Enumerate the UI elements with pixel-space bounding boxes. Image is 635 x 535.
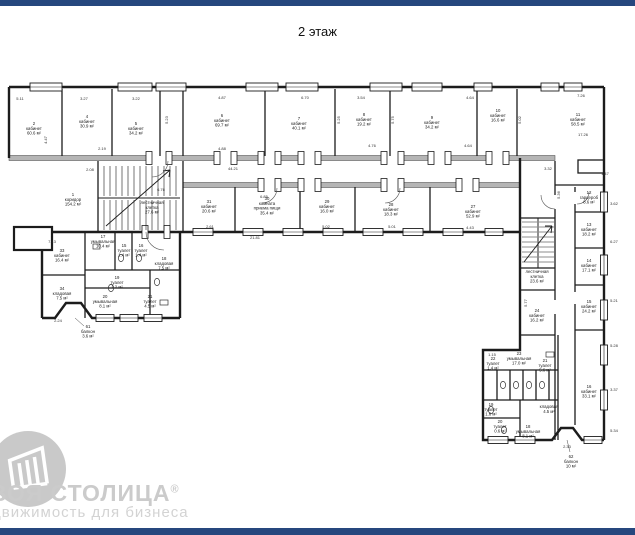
dimension-label: 5.11: [16, 96, 24, 101]
staircase-right: [522, 218, 554, 268]
dimension-label: 2.19: [98, 146, 107, 151]
dimension-label: 3.32: [544, 166, 553, 171]
room-label: 28кабинет18.3 м²: [383, 202, 399, 217]
room-label: 8кабинет19.2 м²: [356, 112, 372, 127]
room-label: 4кабинет30.9 м²: [79, 114, 95, 129]
room-label: 24кабинет16.2 м²: [529, 308, 545, 323]
dimension-label: 2.08: [86, 167, 95, 172]
dimension-label: 5.21: [610, 298, 619, 303]
room-label: 14кабинет17.1 м²: [581, 258, 597, 273]
shaft: [14, 227, 52, 250]
dimension-label: 3.22: [132, 96, 141, 101]
dimension-label: 2.33: [563, 444, 572, 449]
dimension-label: 5.02: [322, 224, 331, 229]
dimension-label: 5.02: [517, 115, 522, 124]
dimension-label: 21.81: [250, 235, 261, 240]
room-label: 34кладовая7.5 м²: [53, 286, 72, 301]
room-label: 33кабинет16.4 м²: [54, 248, 70, 263]
dimension-label: 2.24: [54, 318, 63, 323]
page: 2 этаж ВОЯ СТОЛИЦА® движимость для бизне…: [0, 0, 635, 535]
room-label: 20умывальная8.1 м²: [93, 294, 118, 309]
room-label: 62балкон10 м²: [564, 454, 579, 469]
room-label: кладовая4.5 м²: [540, 404, 559, 414]
dimension-label: 5.36: [556, 190, 561, 199]
room-label: 2кабинет60.6 м²: [26, 121, 42, 136]
room-label: 6кабинет69.7 м²: [214, 113, 230, 128]
room-label: 22туалет1.4 м²: [486, 356, 499, 371]
dimension-label: 4.43: [466, 225, 475, 230]
dimension-label: 3.54: [357, 95, 366, 100]
room-label: 15туалет1.4 м²: [117, 243, 130, 258]
dimension-label: 5.75: [390, 115, 395, 124]
dimension-label: 3.37: [610, 387, 619, 392]
room-label: 21туалет4.5 м²: [143, 294, 156, 309]
dimension-label: 5.01: [388, 224, 397, 229]
room-label: 9кабинет34.2 м²: [424, 115, 440, 130]
room-label: 21туалет5.6 м²: [538, 358, 551, 373]
dimension-label: 4.76: [368, 143, 377, 148]
dimension-label: 6.70: [301, 95, 310, 100]
room-label: 1коридор154.2 м²: [65, 192, 82, 207]
room-label: 15кабинет24.2 м²: [581, 299, 597, 314]
room-label: 61балкон3.6 м²: [81, 324, 96, 339]
room-label: 7кабинет40.1 м²: [291, 116, 307, 131]
dimension-label: 4.64: [464, 143, 473, 148]
dimension-label: 5.34: [610, 428, 619, 433]
room-label: 19туалет1.6 м²: [484, 402, 497, 417]
dimension-label: 6.27: [610, 239, 619, 244]
dimension-label: 4.88: [218, 146, 227, 151]
room-label: 11кабинет58.5 м²: [570, 112, 586, 127]
dimension-label: 5.77: [523, 298, 528, 307]
exterior-walls: [9, 87, 604, 440]
dimension-label: 3.27: [80, 96, 89, 101]
room-label: лестничнаяклетка23.6 м²: [525, 269, 549, 284]
room-label: лестничнаяклетка27.6 м²: [140, 200, 164, 215]
room-label: 29кабинет16.0 м²: [319, 199, 335, 214]
dimension-label: 6.76: [157, 187, 166, 192]
room-label: 19туалет1.2 м²: [110, 275, 123, 290]
bottom-border-bar: [0, 528, 635, 535]
dimension-label: 7.26: [577, 93, 586, 98]
room-label: 27кабинет52.9 м²: [465, 204, 481, 219]
dimension-label: 4.64: [466, 95, 475, 100]
staircase-left: [98, 166, 180, 230]
room-label: 18кладовая7.5 м²: [155, 256, 174, 271]
dimension-label: 44.21: [228, 166, 239, 171]
dimension-label: 1.15: [488, 352, 497, 357]
dimension-label: 5.25: [336, 115, 341, 124]
sanitary-fixtures: [93, 244, 554, 434]
room-label: 10кабинет16.6 м²: [490, 108, 506, 123]
dimension-label: 4.47: [43, 135, 48, 144]
room-label: 31кабинет20.6 м²: [201, 199, 217, 214]
dimension-label: 4.87: [218, 95, 227, 100]
dimension-label: 5.28: [610, 343, 619, 348]
floorplan-svg: 2кабинет60.6 м²4кабинет30.9 м²5кабинет34…: [0, 0, 635, 535]
room-label: 13кабинет18.2 м²: [581, 222, 597, 237]
plan-labels: 2кабинет60.6 м²4кабинет30.9 м²5кабинет34…: [16, 93, 618, 469]
dimension-label: 7.13: [48, 239, 57, 244]
room-label: 16кабинет33.1 м²: [581, 384, 597, 399]
dimension-label: 5.23: [164, 115, 169, 124]
dimension-label: 3.62: [610, 201, 619, 206]
dimension-label: 1.47: [601, 171, 610, 176]
room-label: 16туалет1.4 м²: [134, 243, 147, 258]
dimension-label: 2.61: [206, 224, 215, 229]
room-label: 17умывальная10.4 м²: [91, 234, 116, 249]
room-label: 23умывальная17.0 м²: [507, 351, 532, 366]
dimension-label: 17.26: [578, 132, 589, 137]
room-label: 5кабинет34.2 м²: [128, 121, 144, 136]
dimension-label: 6.85: [260, 194, 269, 199]
room-label: 12гардероб8.6 м²: [580, 190, 599, 205]
room-label: 20туалет0.6 м²: [493, 419, 506, 434]
